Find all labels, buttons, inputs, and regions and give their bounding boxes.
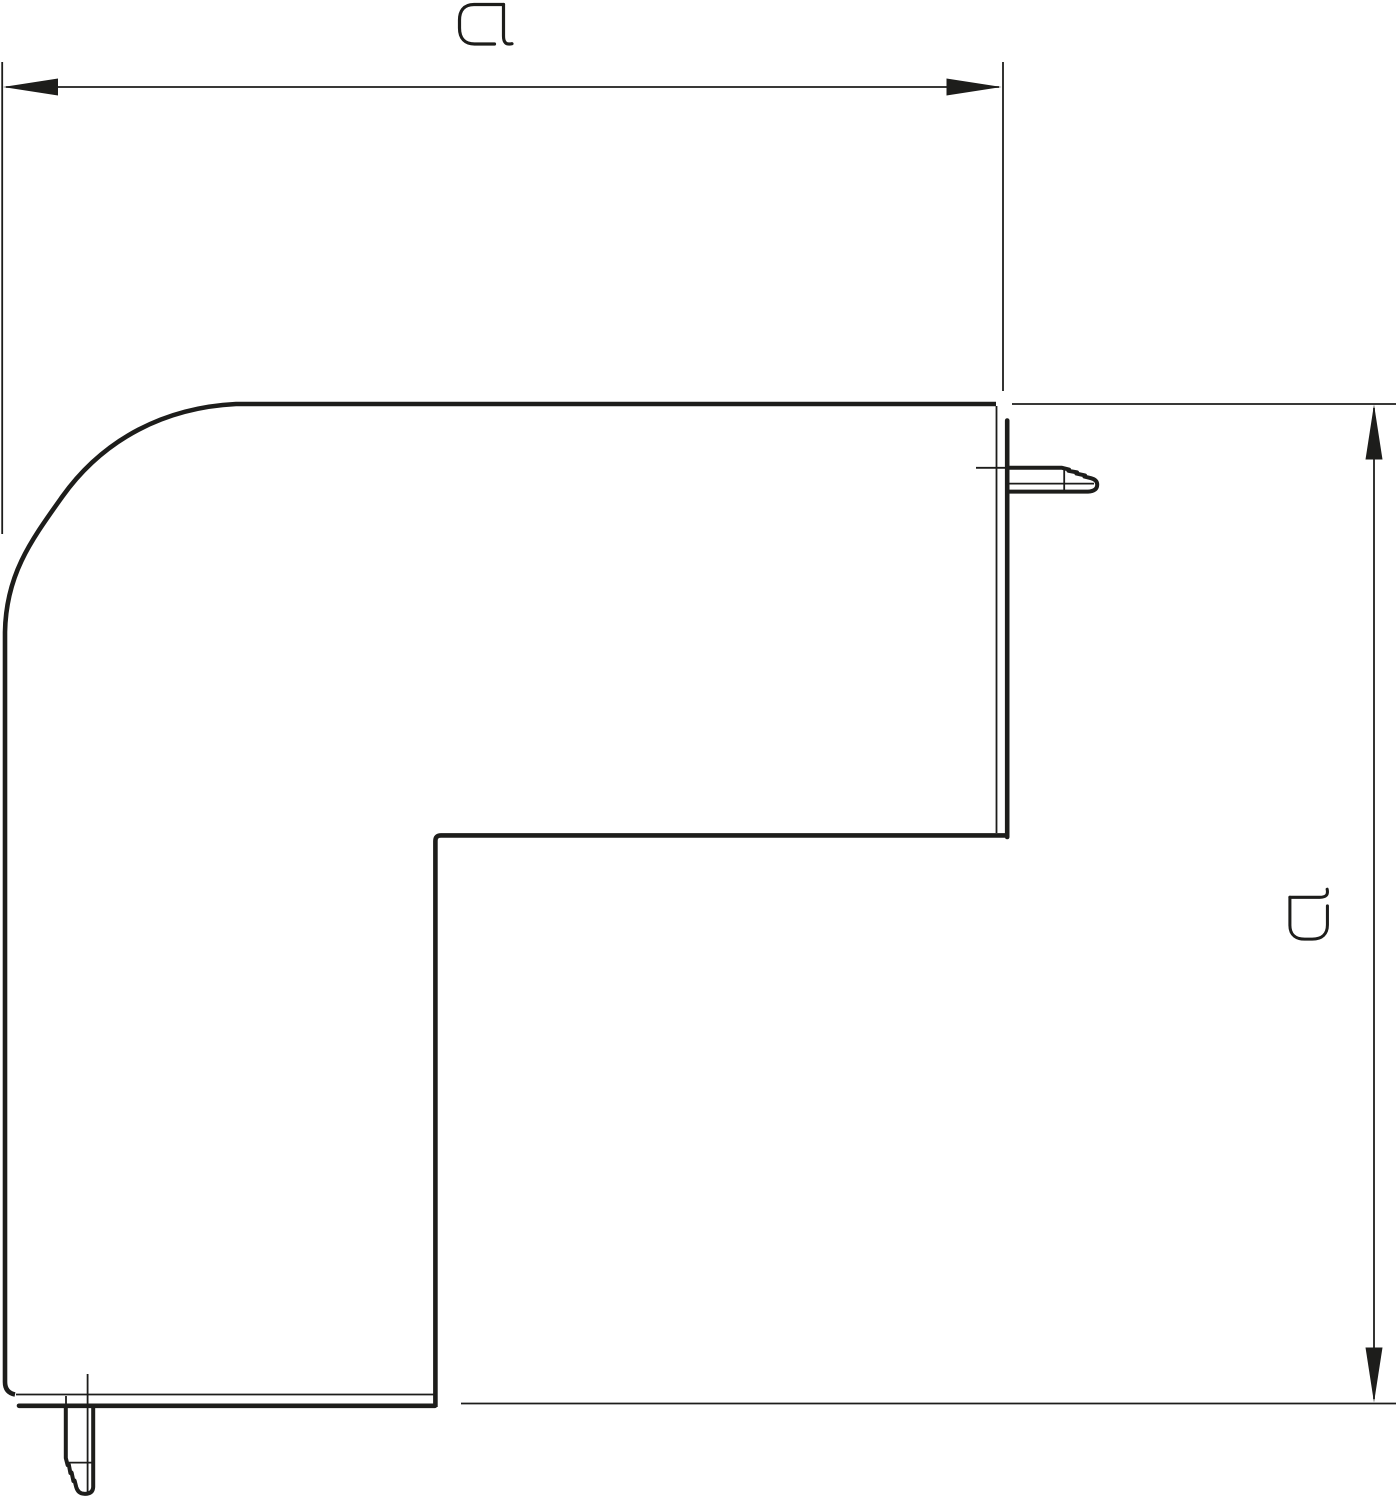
arrowhead-down-icon xyxy=(1366,1348,1383,1403)
arrowhead-up-icon xyxy=(1366,405,1383,460)
drawing-canvas: a a xyxy=(0,0,1396,1500)
arrowhead-right-icon xyxy=(947,79,1002,96)
width-dimension-label: a xyxy=(466,0,499,57)
latch-right-outline xyxy=(1009,468,1097,492)
clip-latch-bottom xyxy=(66,1374,93,1494)
inner-corner-edge xyxy=(435,835,1005,1407)
latch-bottom-outline xyxy=(66,1407,93,1494)
clip-latch-right xyxy=(976,468,1097,492)
vertical-dimension xyxy=(461,404,1396,1404)
body-outline xyxy=(5,404,996,1395)
drawing-lines xyxy=(2,5,1396,1494)
technical-drawing: a a xyxy=(0,0,1396,1500)
horizontal-dimension xyxy=(2,5,1003,535)
corner-body xyxy=(5,404,1097,1494)
height-dimension-label: a xyxy=(1276,898,1339,931)
arrowhead-left-icon xyxy=(3,79,58,96)
end-cap-right xyxy=(997,406,1008,837)
end-cap-bottom xyxy=(16,1395,435,1406)
